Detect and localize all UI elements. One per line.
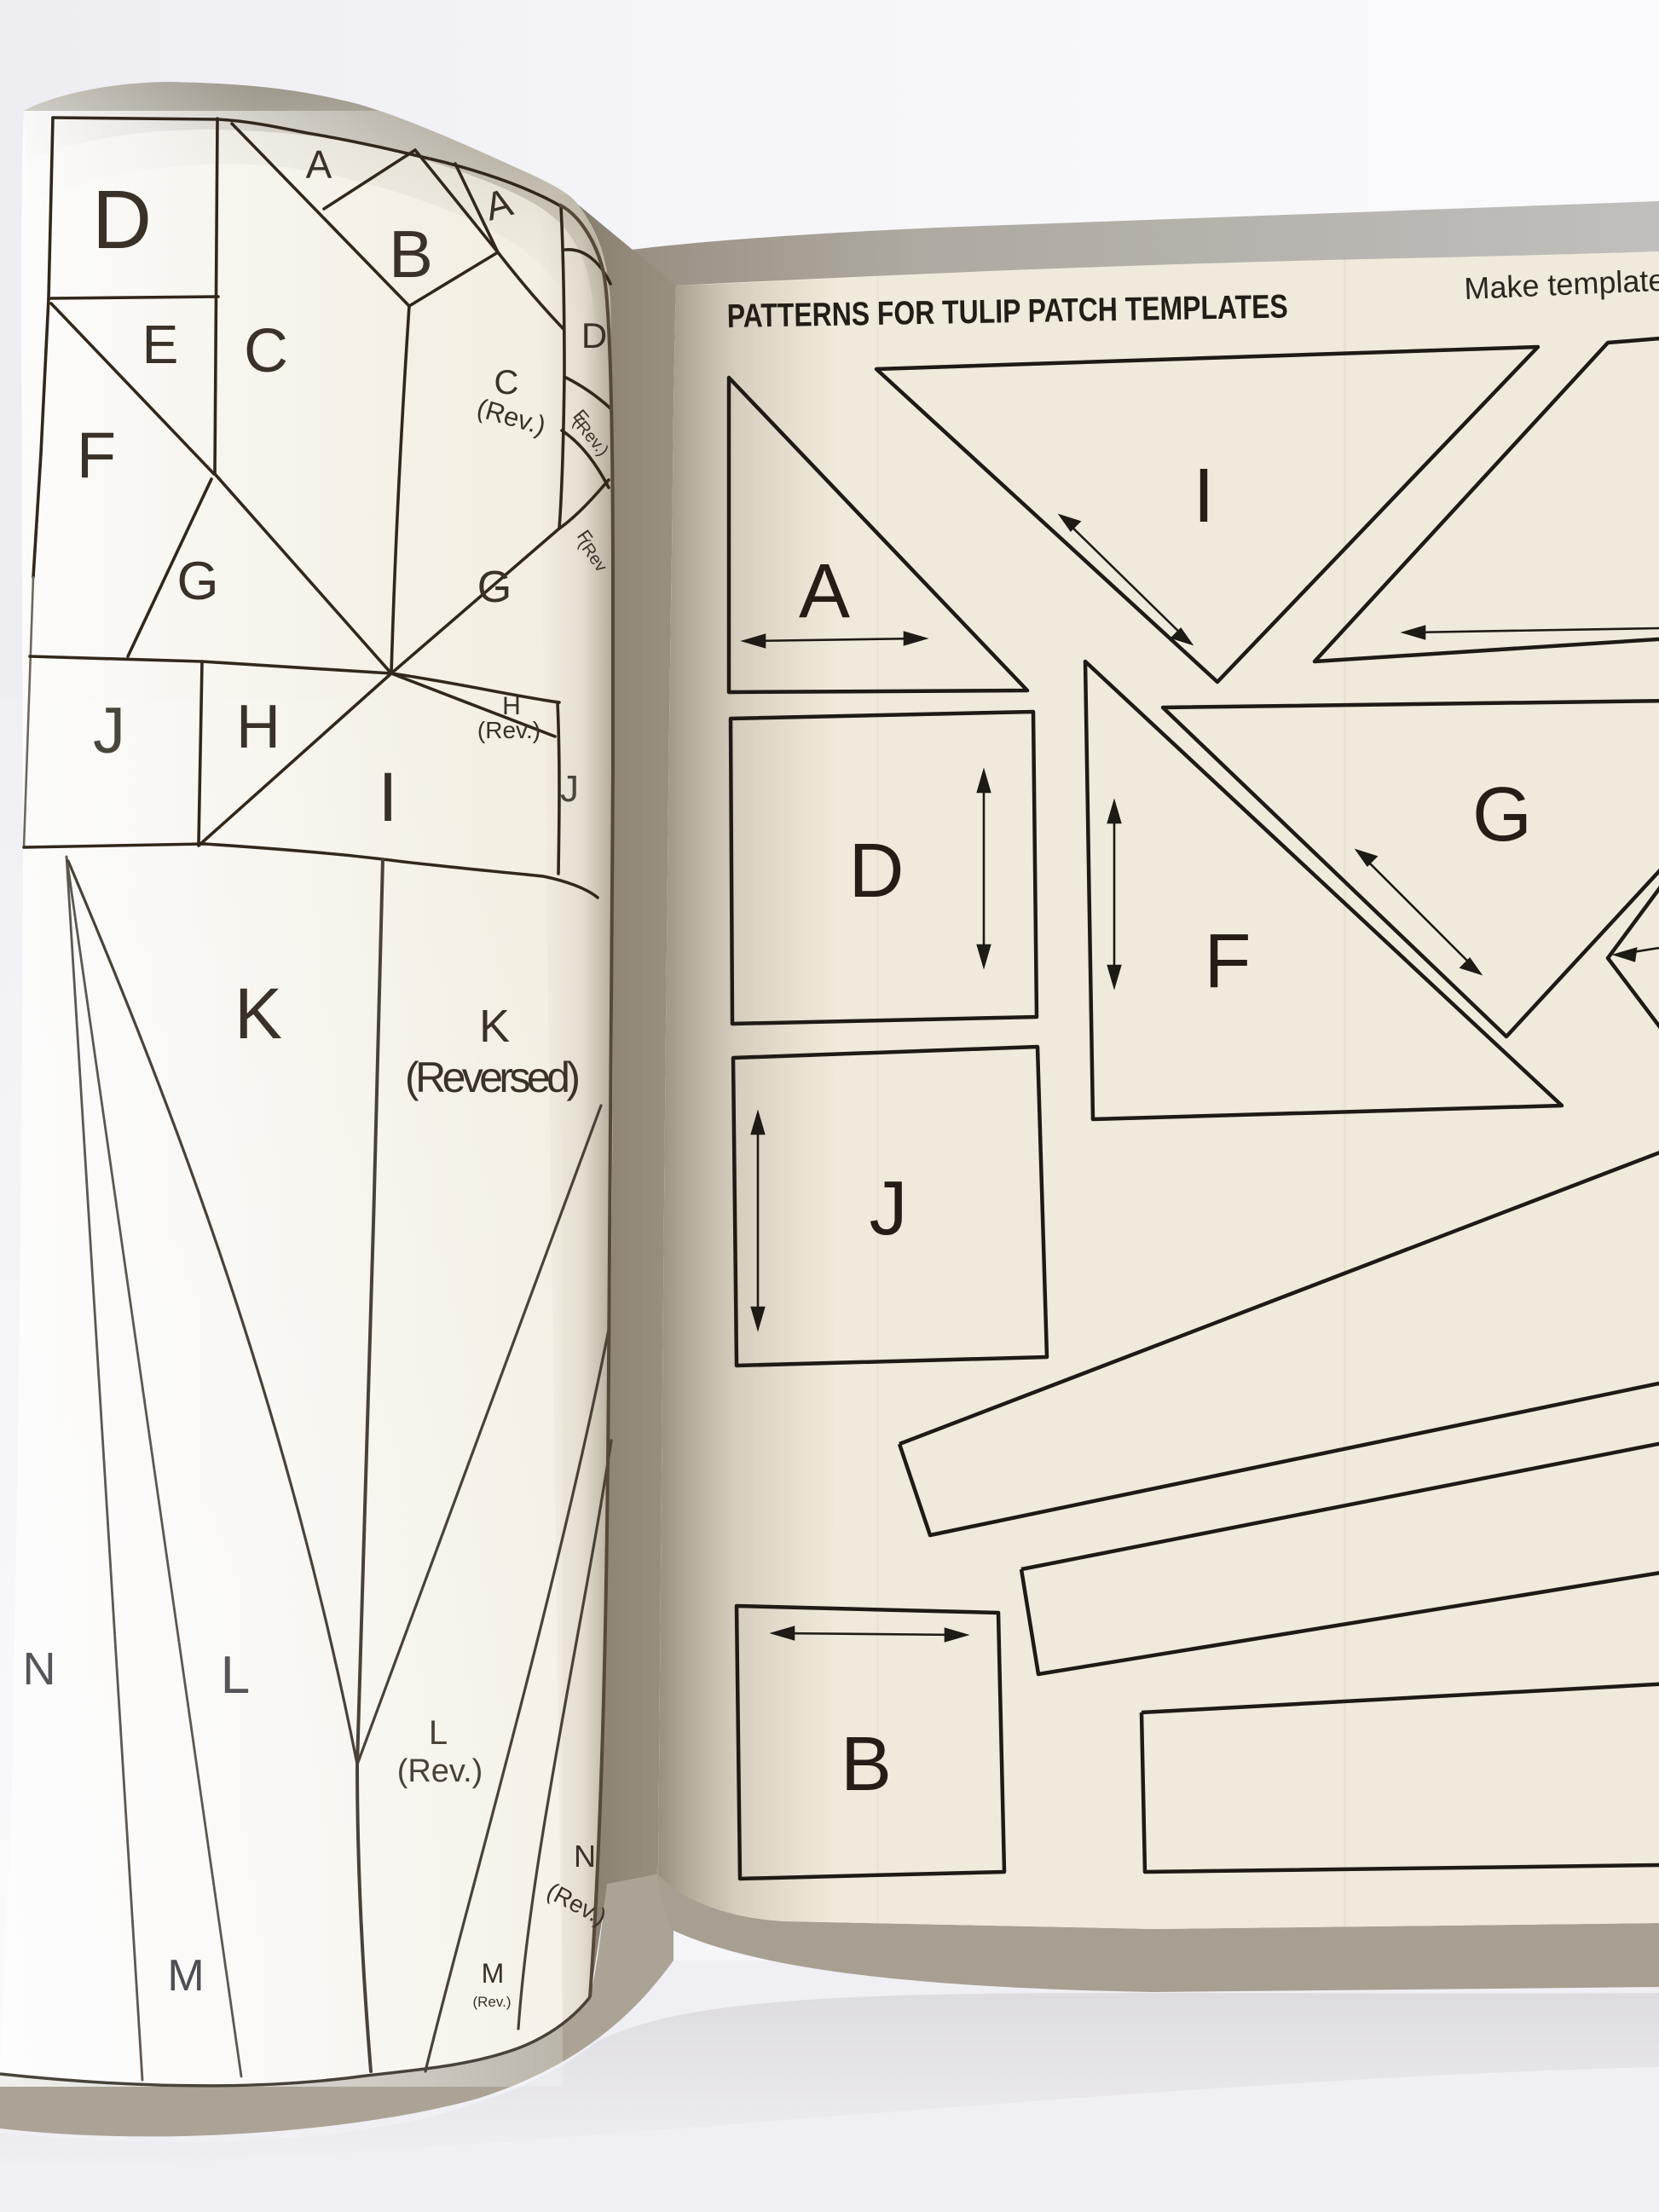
svg-text:M: M	[482, 1958, 505, 1989]
svg-text:D: D	[92, 173, 152, 266]
svg-text:H: H	[236, 693, 280, 761]
svg-text:F: F	[1205, 919, 1251, 1004]
svg-text:M: M	[167, 1951, 204, 2001]
svg-text:B: B	[841, 1722, 892, 1807]
svg-text:B: B	[389, 217, 433, 292]
svg-text:A: A	[306, 142, 332, 187]
svg-text:(Rev.): (Rev.)	[477, 717, 540, 743]
svg-text:(Rev.): (Rev.)	[472, 1994, 511, 2010]
svg-text:E: E	[142, 314, 179, 375]
svg-text:J: J	[870, 1166, 908, 1251]
svg-text:G: G	[477, 563, 512, 612]
svg-text:(Reversed): (Reversed)	[405, 1054, 581, 1101]
svg-text:J: J	[560, 768, 579, 810]
svg-text:I: I	[379, 759, 398, 836]
svg-text:D: D	[849, 829, 905, 914]
svg-text:F: F	[77, 419, 116, 492]
svg-text:(Rev.): (Rev.)	[397, 1753, 483, 1789]
svg-text:C: C	[494, 364, 519, 401]
svg-text:A: A	[799, 549, 850, 634]
svg-text:L: L	[429, 1714, 448, 1752]
svg-text:K: K	[234, 973, 282, 1054]
svg-text:D: D	[581, 315, 607, 355]
svg-text:N: N	[23, 1643, 56, 1695]
svg-text:J: J	[93, 695, 125, 767]
svg-text:G: G	[1472, 772, 1532, 858]
svg-text:C: C	[244, 317, 288, 385]
svg-text:I: I	[1193, 453, 1214, 539]
svg-text:G: G	[176, 552, 218, 611]
svg-text:K: K	[479, 1001, 510, 1052]
svg-text:N: N	[574, 1839, 596, 1874]
svg-text:L: L	[221, 1646, 250, 1705]
